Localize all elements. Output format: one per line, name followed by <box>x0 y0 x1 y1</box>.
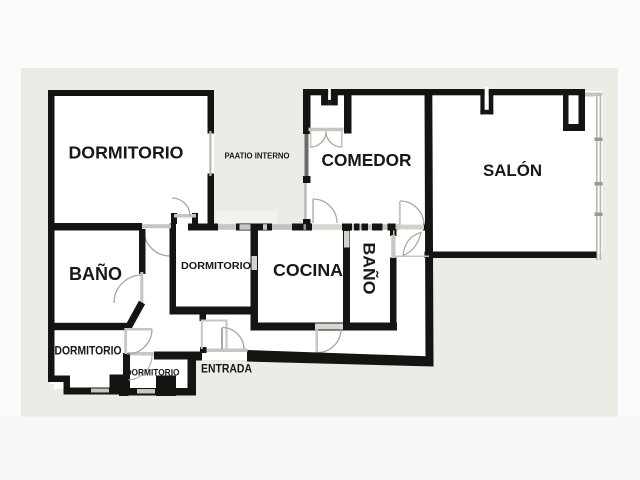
svg-text:PAATIO INTERNO: PAATIO INTERNO <box>225 152 290 161</box>
svg-text:DORMITORIO: DORMITORIO <box>55 346 122 358</box>
svg-text:COMEDOR: COMEDOR <box>322 150 412 170</box>
svg-text:DORMITORIO: DORMITORIO <box>69 143 184 163</box>
svg-text:BAÑO: BAÑO <box>360 243 380 295</box>
svg-text:ENTRADA: ENTRADA <box>201 364 252 376</box>
svg-text:DORMITORIO: DORMITORIO <box>181 261 251 272</box>
svg-text:BAÑO: BAÑO <box>69 263 122 284</box>
svg-text:DORMITORIO: DORMITORIO <box>126 368 180 378</box>
svg-text:SALÓN: SALÓN <box>483 161 542 180</box>
svg-text:COCINA: COCINA <box>273 260 343 280</box>
